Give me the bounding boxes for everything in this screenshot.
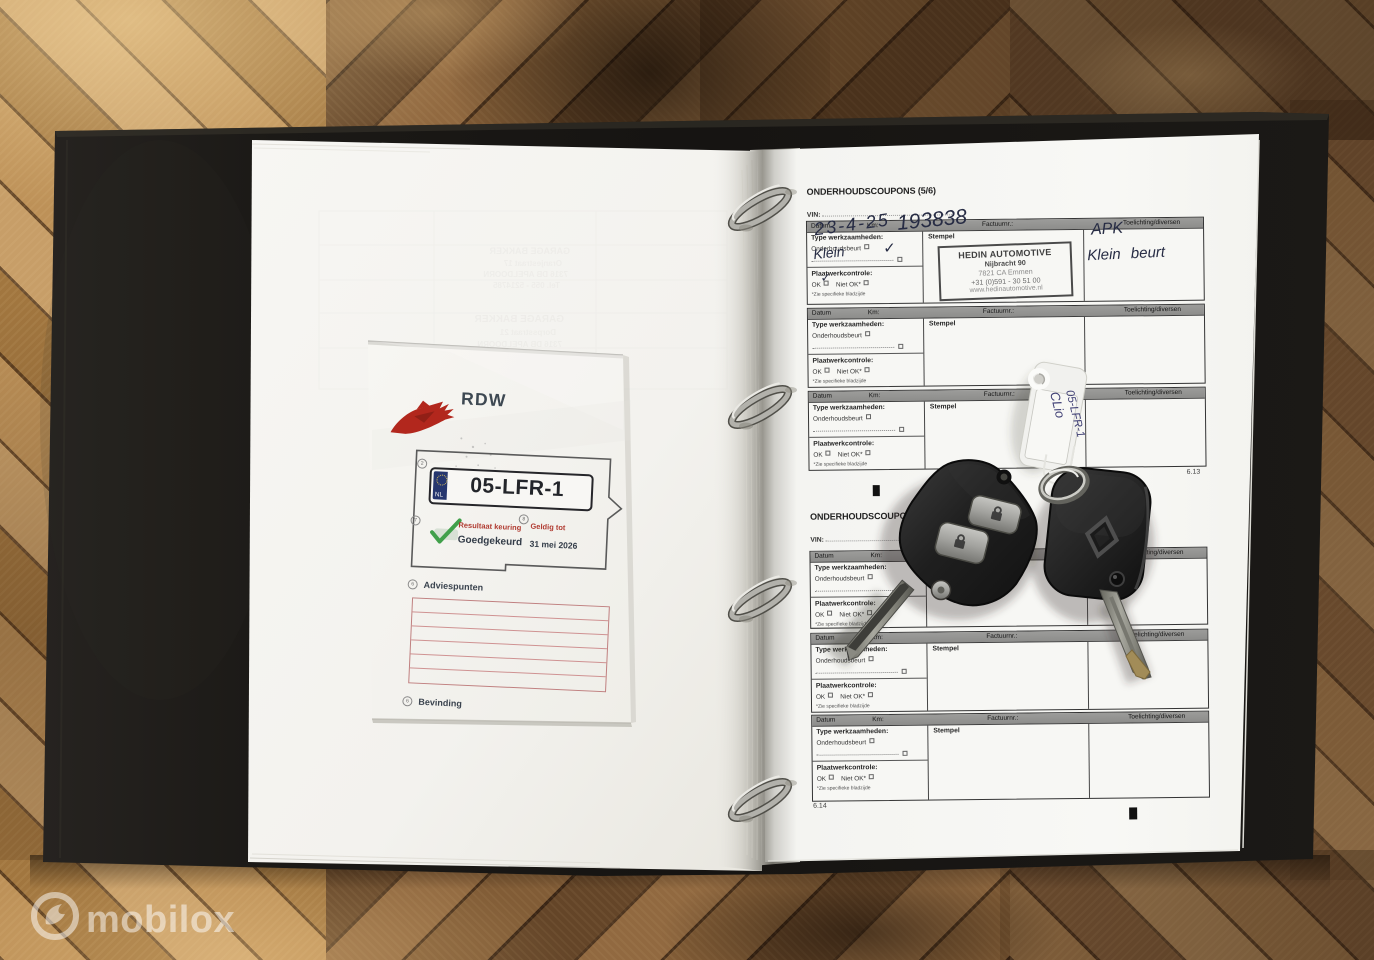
- svg-text:mobilox: mobilox: [86, 899, 235, 941]
